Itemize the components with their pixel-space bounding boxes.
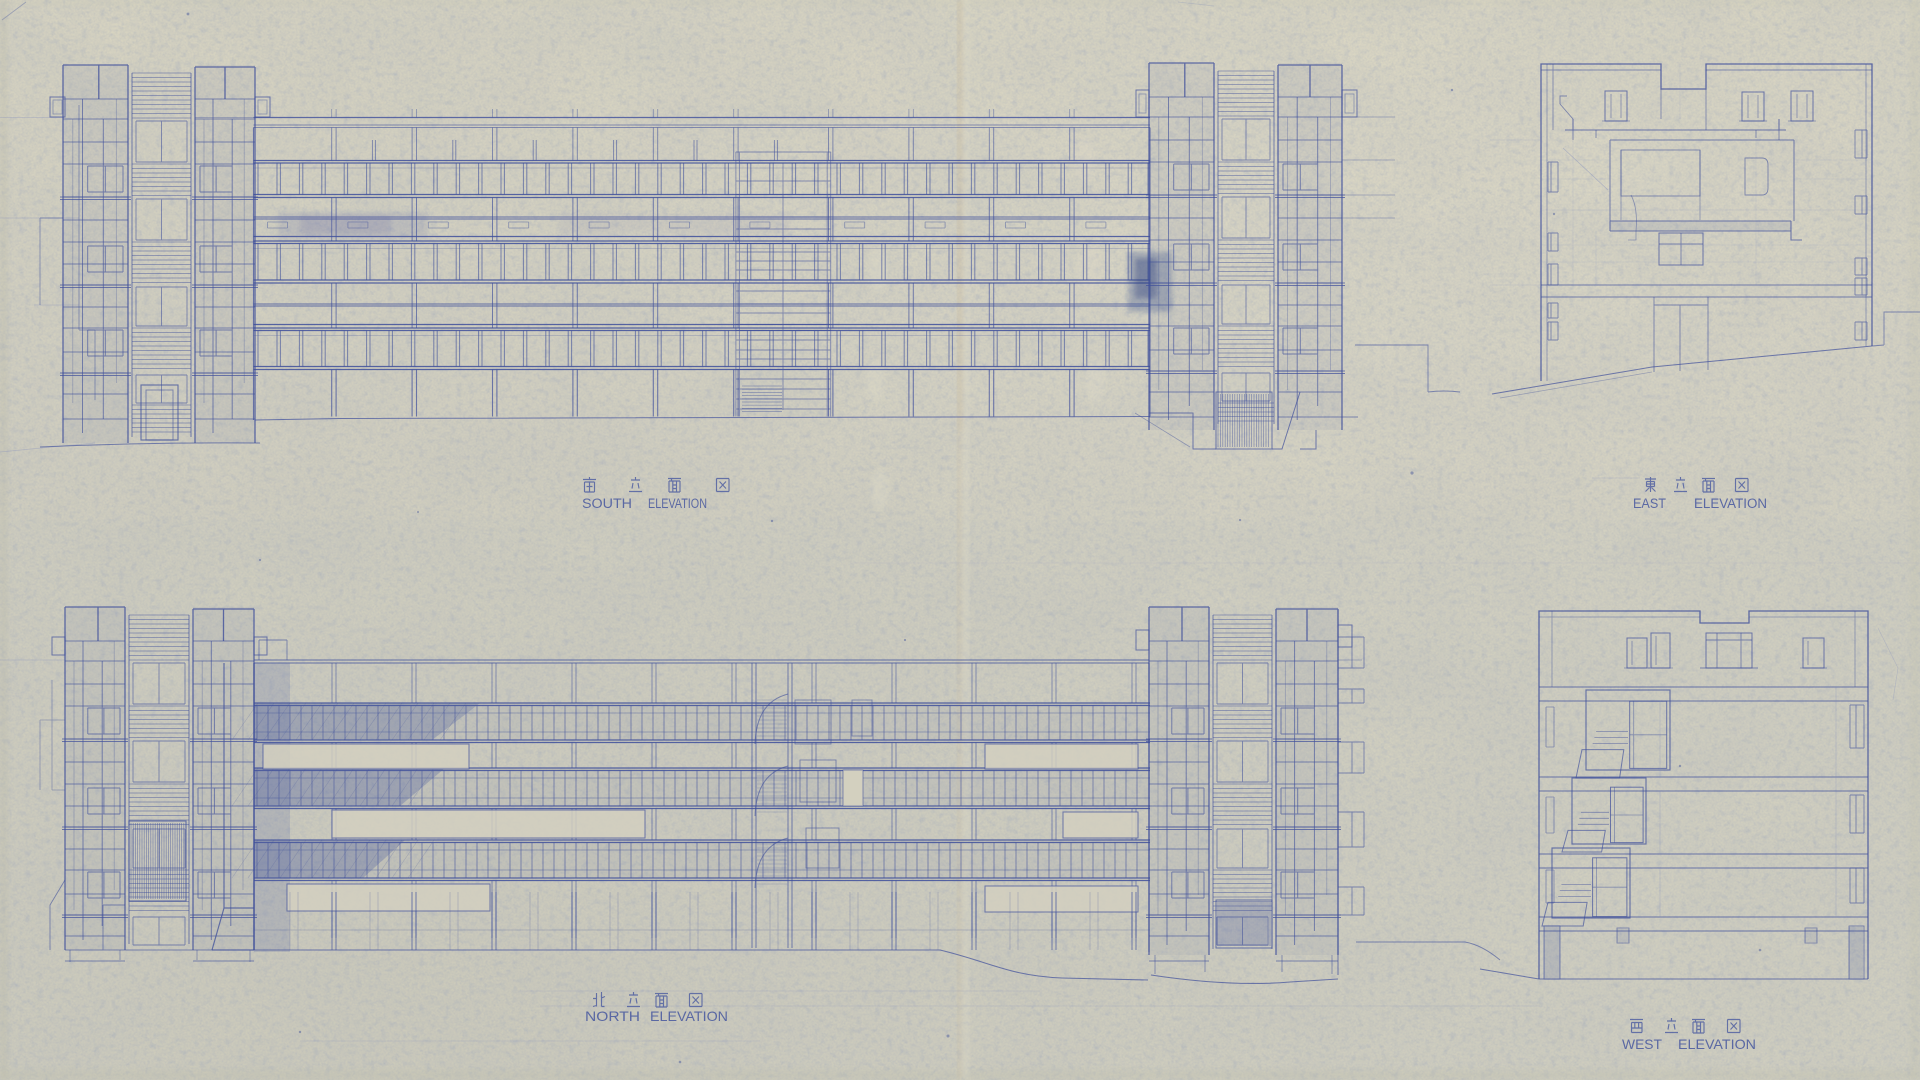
svg-text:WEST: WEST bbox=[1622, 1036, 1662, 1052]
svg-text:ELEVATION: ELEVATION bbox=[648, 496, 707, 511]
svg-text:ELEVATION: ELEVATION bbox=[650, 1008, 728, 1024]
svg-text:ELEVATION: ELEVATION bbox=[1678, 1036, 1756, 1052]
svg-text:SOUTH: SOUTH bbox=[582, 496, 632, 511]
svg-text:NORTH: NORTH bbox=[585, 1008, 640, 1024]
svg-text:EAST: EAST bbox=[1633, 496, 1666, 511]
svg-text:ELEVATION: ELEVATION bbox=[1694, 496, 1767, 511]
